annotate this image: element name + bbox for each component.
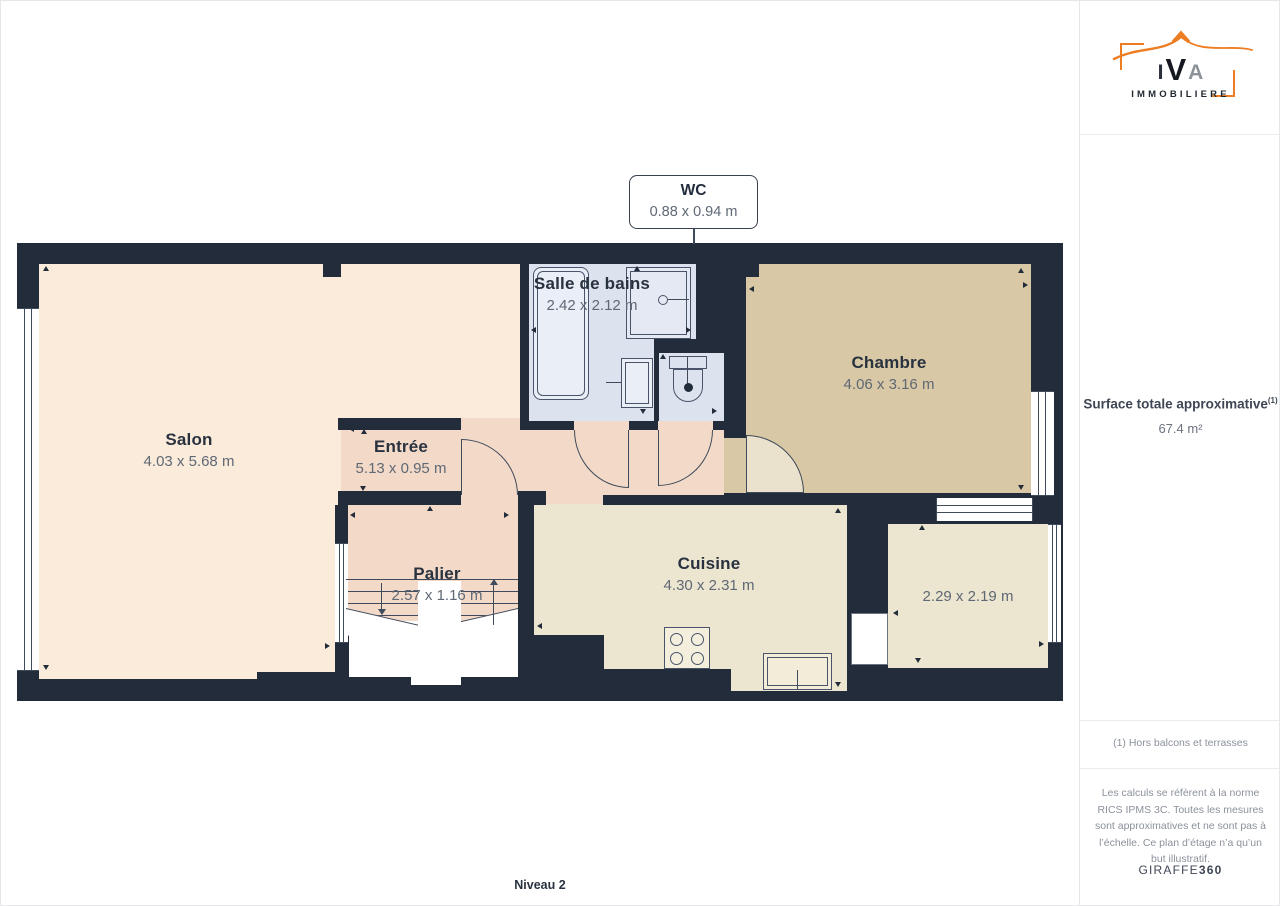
- dimension-tick: [528, 327, 536, 333]
- window: [1048, 524, 1061, 643]
- room-label-entree: Entrée 5.13 x 0.95 m: [356, 435, 447, 480]
- room-label-salle-de-bains: Salle de bains 2.42 x 2.12 m: [534, 272, 650, 317]
- wall: [338, 491, 461, 505]
- logo-subtitle: IMMOBILIERE: [1080, 89, 1280, 100]
- wc-callout-title: WC: [630, 180, 757, 202]
- room-label-palier: Palier 2.57 x 1.16 m: [392, 562, 483, 607]
- dimension-tick: [660, 351, 666, 359]
- dimension-tick: [835, 505, 841, 513]
- stove-burner: [691, 652, 704, 665]
- wall: [603, 495, 738, 505]
- room-name: Salon: [144, 428, 235, 451]
- dimension-tick: [1023, 282, 1031, 288]
- room-name: Entrée: [356, 435, 447, 458]
- room-dims: 2.42 x 2.12 m: [534, 295, 650, 317]
- stove-burner: [670, 633, 683, 646]
- dimension-tick: [634, 263, 640, 271]
- window: [17, 308, 39, 671]
- shower-head-icon: [658, 295, 668, 305]
- dimension-tick: [712, 408, 720, 414]
- dimension-tick: [919, 522, 925, 530]
- room-entree-floor: [461, 418, 520, 430]
- dimension-tick: [915, 658, 921, 666]
- dimension-tick: [1039, 641, 1047, 647]
- dimension-tick: [890, 610, 898, 616]
- dimension-tick: [746, 286, 754, 292]
- surface-total-value: 67.4 m²: [1080, 421, 1280, 436]
- wc-callout: WC 0.88 x 0.94 m: [629, 175, 758, 229]
- logo-letter: I: [1158, 61, 1164, 85]
- doorway-wc: [658, 421, 713, 430]
- dimension-tick: [835, 682, 841, 690]
- wall: [257, 672, 342, 680]
- wall-notch: [746, 264, 759, 277]
- stairwell-void: [411, 677, 461, 685]
- dimension-tick: [360, 486, 366, 494]
- stair-arrow-up: [493, 585, 494, 625]
- room-dims: 4.03 x 5.68 m: [144, 451, 235, 473]
- dimension-tick: [347, 512, 355, 518]
- sidebar: IVA IMMOBILIERE Surface totale approxima…: [1079, 1, 1280, 906]
- agency-logo: IVA IMMOBILIERE: [1080, 1, 1280, 134]
- legal-disclaimer: Les calculs se réfèrent à la norme RICS …: [1094, 785, 1267, 868]
- dimension-tick: [43, 665, 49, 673]
- wc-callout-leader: [693, 229, 695, 244]
- divider: [1080, 720, 1280, 721]
- sink-connector: [606, 382, 621, 383]
- dimension-tick: [504, 512, 512, 518]
- bathroom-sink-inner: [625, 362, 649, 404]
- dimension-tick: [361, 426, 367, 434]
- room-name: Cuisine: [664, 552, 755, 575]
- room-name: Salle de bains: [534, 272, 650, 295]
- brand-suffix: 360: [1199, 863, 1223, 877]
- stove-burner: [670, 652, 683, 665]
- room-dims: 4.30 x 2.31 m: [664, 575, 755, 597]
- surface-total-label: Surface totale approximative(1): [1080, 396, 1280, 412]
- toilet-drain-dot: [684, 383, 693, 392]
- hall-kitchen-opening: [546, 491, 603, 505]
- brand-name: GIRAFFE: [1138, 863, 1198, 877]
- stair-arrow-down: [381, 583, 382, 609]
- wall: [724, 493, 847, 505]
- dimension-tick: [43, 263, 49, 271]
- doorway-salle-de-bains: [574, 421, 629, 430]
- room-name: Chambre: [844, 351, 935, 374]
- shower-head-arm: [668, 299, 689, 300]
- room-label-piece2: 2.29 x 2.19 m: [923, 586, 1014, 608]
- surface-label-text: Surface totale approximative: [1083, 397, 1268, 412]
- room-dims: 2.29 x 2.19 m: [923, 586, 1014, 608]
- dimension-tick: [1018, 265, 1024, 273]
- dimension-tick: [534, 623, 542, 629]
- doorway-piece2: [851, 613, 888, 665]
- logo-letter: A: [1188, 61, 1203, 85]
- dimension-tick: [640, 409, 646, 417]
- window: [936, 498, 1033, 521]
- wall-step: [604, 669, 731, 691]
- room-label-cuisine: Cuisine 4.30 x 2.31 m: [664, 552, 755, 597]
- doorway-chambre: [724, 438, 746, 493]
- footnote-text: (1) Hors balcons et terrasses: [1090, 737, 1271, 749]
- room-salon-floor: [39, 264, 520, 418]
- wall-step: [534, 635, 604, 691]
- stair-arrow-down-head: [378, 609, 386, 619]
- window: [1031, 391, 1054, 496]
- giraffe360-brand: GIRAFFE360: [1080, 863, 1280, 877]
- dimension-tick: [1018, 485, 1024, 493]
- wall: [518, 491, 546, 505]
- surface-total-block: Surface totale approximative(1) 67.4 m²: [1080, 396, 1280, 436]
- stove-burner: [691, 633, 704, 646]
- level-label: Niveau 2: [1, 878, 1079, 892]
- divider: [1080, 134, 1280, 135]
- footnote-ref: (1): [1268, 396, 1278, 405]
- floor-plan: WC 0.88 x 0.94 m Salon 4.03 x 5.68 m Ent…: [1, 1, 1079, 906]
- dimension-tick: [686, 327, 694, 333]
- room-dims: 2.57 x 1.16 m: [392, 585, 483, 607]
- dimension-tick: [346, 426, 354, 432]
- wall: [520, 264, 529, 430]
- room-dims: 4.06 x 3.16 m: [844, 374, 935, 396]
- logo-letter: V: [1165, 55, 1186, 85]
- wall: [654, 353, 659, 421]
- bathroom-sink: [621, 358, 653, 408]
- toilet-flush-line: [687, 357, 688, 385]
- logo-wordmark: IVA: [1080, 41, 1280, 85]
- wall: [724, 264, 746, 438]
- wall: [518, 505, 534, 701]
- divider: [1080, 768, 1280, 769]
- floorplan-page: WC 0.88 x 0.94 m Salon 4.03 x 5.68 m Ent…: [0, 0, 1280, 906]
- kitchen-tap: [797, 670, 798, 689]
- wc-callout-dims: 0.88 x 0.94 m: [630, 202, 757, 222]
- room-name: Palier: [392, 562, 483, 585]
- dimension-tick: [427, 503, 433, 511]
- room-dims: 5.13 x 0.95 m: [356, 458, 447, 480]
- dimension-tick: [325, 643, 333, 649]
- room-label-chambre: Chambre 4.06 x 3.16 m: [844, 351, 935, 396]
- stair-arrow-up-head: [490, 575, 498, 585]
- wall-notch: [323, 264, 341, 277]
- room-label-salon: Salon 4.03 x 5.68 m: [144, 428, 235, 473]
- wall: [338, 418, 461, 430]
